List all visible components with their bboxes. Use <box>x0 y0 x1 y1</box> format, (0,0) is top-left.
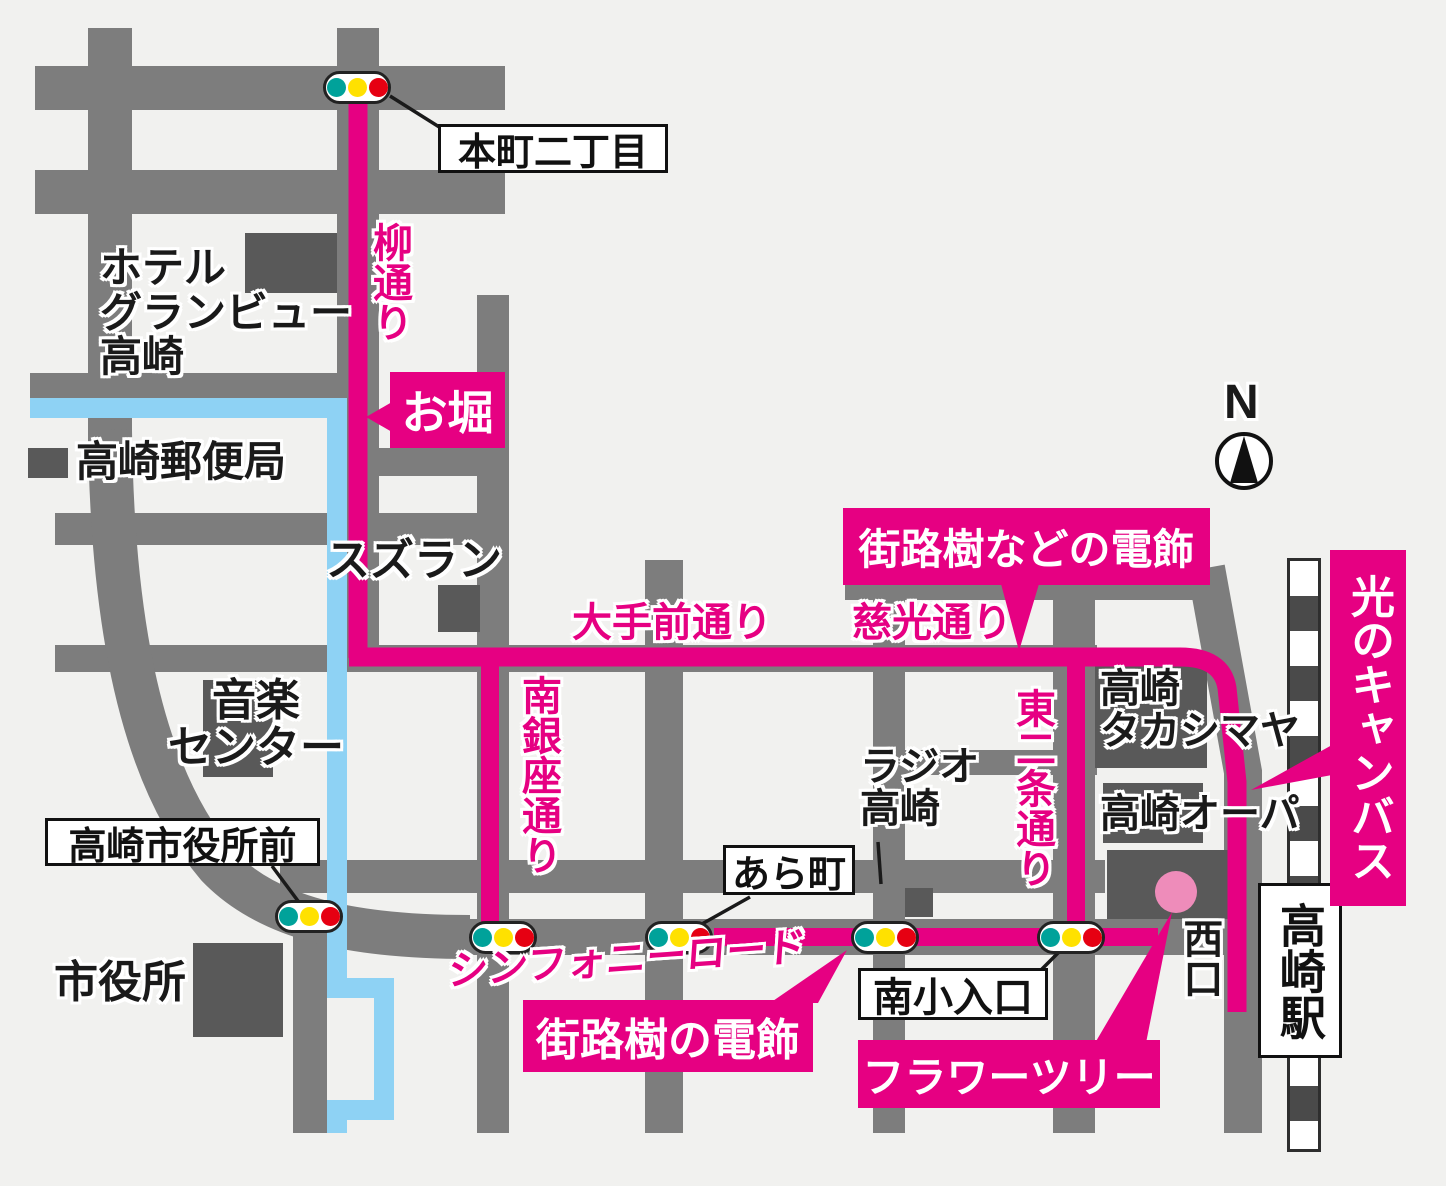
label-hotel-granview: ホテル グランビュー 高崎 <box>100 246 352 380</box>
red-light-icon <box>1083 928 1102 947</box>
badge-flower-tree: フラワーツリー <box>858 1040 1160 1108</box>
takasaki-illumination-map: N 柳通り 大手前通り 慈光通り 南銀座通り 東二条通り シンフォニーロード ホ… <box>0 0 1446 1186</box>
label-line: 高崎 <box>100 335 352 380</box>
red-light-icon <box>369 78 388 97</box>
label-line: ホテル <box>100 246 352 291</box>
sign-ara-machi: あら町 <box>723 845 855 895</box>
sign-honmachi-2chome: 本町二丁目 <box>438 124 668 173</box>
street-minami-ginza-dori: 南銀座通り <box>517 675 559 875</box>
sign-shiyakusho-mae: 高崎市役所前 <box>45 818 320 866</box>
yellow-light-icon <box>876 928 895 947</box>
label-opa: 高崎オーパ <box>1100 793 1300 835</box>
label-line: 高崎 <box>1100 668 1300 710</box>
street-higashi-nijo-dori: 東二条通り <box>1011 688 1053 888</box>
label-line: 音楽 <box>166 678 346 725</box>
green-light-icon <box>327 78 346 97</box>
label-post-office: 高崎郵便局 <box>76 440 286 485</box>
building-city-hall <box>193 943 283 1037</box>
traffic-light-icon <box>851 921 919 954</box>
building-suzuran <box>438 585 480 632</box>
label-line: ラジオ <box>860 746 979 788</box>
compass-icon <box>1217 434 1271 488</box>
yellow-light-icon <box>494 928 513 947</box>
street-otemae-dori: 大手前通り <box>572 602 772 644</box>
flower-tree-spot <box>1155 871 1197 913</box>
label-line: センター <box>166 725 346 772</box>
label-city-hall: 市役所 <box>54 960 186 1007</box>
green-light-icon <box>473 928 492 947</box>
badge-ohori: お堀 <box>390 372 505 448</box>
badge-gairoju-no-denshoku: 街路樹の電飾 <box>523 1000 813 1072</box>
yellow-light-icon <box>300 907 319 926</box>
sign-takasaki-station: 高崎駅 <box>1258 883 1342 1058</box>
yellow-light-icon <box>348 78 367 97</box>
street-jiko-dori: 慈光通り <box>852 602 1012 644</box>
green-light-icon <box>1041 928 1060 947</box>
compass-north-label: N <box>1224 378 1259 429</box>
traffic-light-icon <box>1037 921 1105 954</box>
building-radio-takasaki <box>905 888 933 917</box>
label-suzuran: スズラン <box>326 538 502 585</box>
green-light-icon <box>855 928 874 947</box>
label-west-exit: 西口 <box>1178 918 1220 998</box>
building-post-office <box>28 448 68 478</box>
red-light-icon <box>897 928 916 947</box>
label-line: 高崎 <box>860 788 979 830</box>
badge-gairoju-nado-no-denshoku: 街路樹などの電飾 <box>843 508 1210 585</box>
street-yanagi-dori: 柳通り <box>368 222 410 342</box>
label-line: タカシマヤ <box>1100 710 1300 752</box>
label-line: グランビュー <box>100 291 352 336</box>
traffic-light-icon <box>275 900 343 933</box>
label-takashimaya: 高崎 タカシマヤ <box>1100 668 1300 753</box>
yellow-light-icon <box>1062 928 1081 947</box>
label-music-center: 音楽 センター <box>166 678 346 771</box>
traffic-light-icon <box>323 71 391 104</box>
label-radio-takasaki: ラジオ 高崎 <box>860 746 979 831</box>
green-light-icon <box>279 907 298 926</box>
sign-minamiko-iriguchi: 南小入口 <box>858 968 1048 1020</box>
red-light-icon <box>321 907 340 926</box>
badge-hikari-no-canvas: 光のキャンバス <box>1330 550 1406 906</box>
